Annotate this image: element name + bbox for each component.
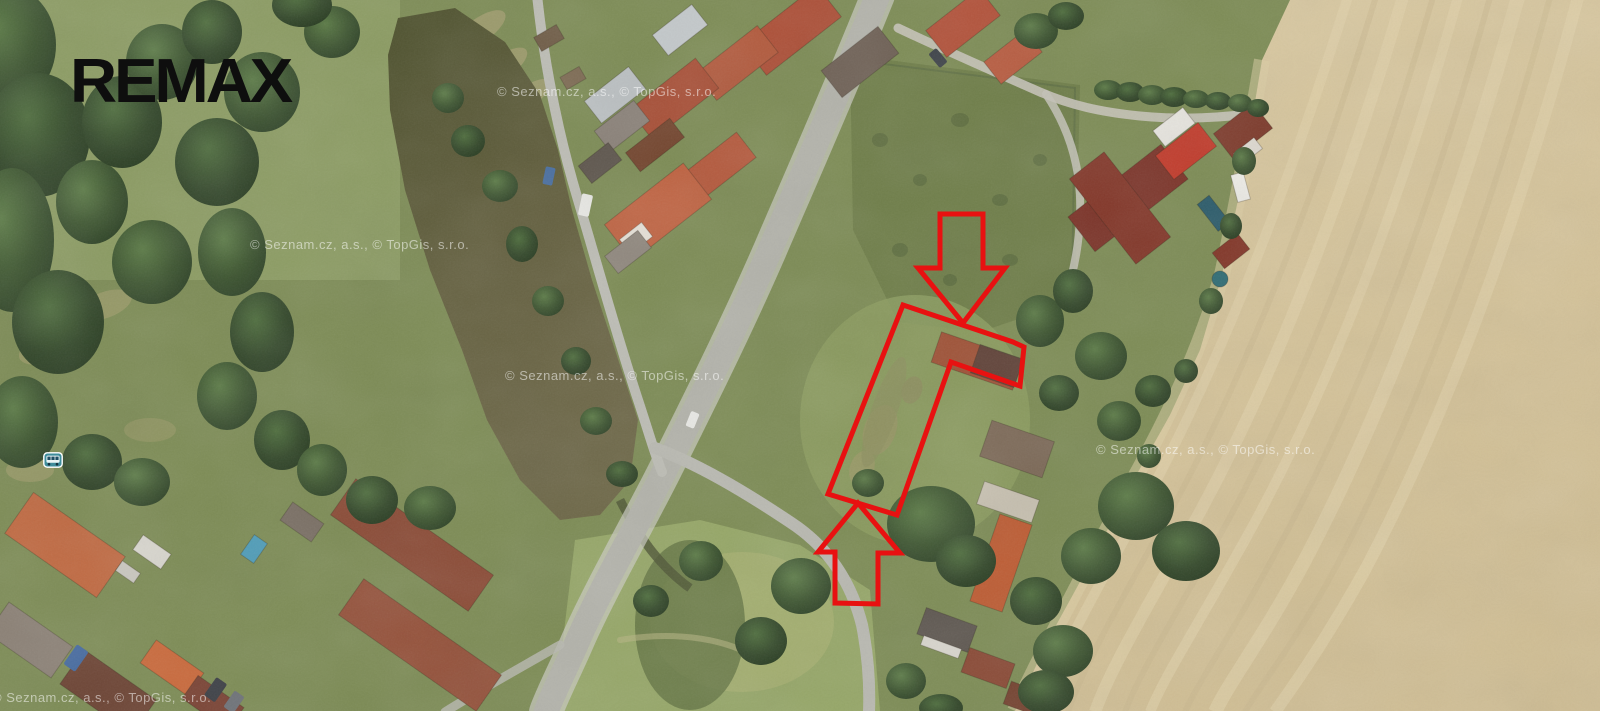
- copyright-watermark: © Seznam.cz, a.s., © TopGis, s.r.o.: [505, 368, 724, 383]
- remax-logo: REMAX: [70, 47, 293, 116]
- copyright-watermark: © Seznam.cz, a.s., © TopGis, s.r.o.: [1096, 442, 1315, 457]
- copyright-watermark: © Seznam.cz, a.s., © TopGis, s.r.o.: [0, 690, 211, 705]
- copyright-watermark: © Seznam.cz, a.s., © TopGis, s.r.o.: [250, 237, 469, 252]
- aerial-map[interactable]: © Seznam.cz, a.s., © TopGis, s.r.o. © Se…: [0, 0, 1600, 711]
- copyright-watermark: © Seznam.cz, a.s., © TopGis, s.r.o.: [497, 84, 716, 99]
- bus-stop-icon: [44, 453, 62, 467]
